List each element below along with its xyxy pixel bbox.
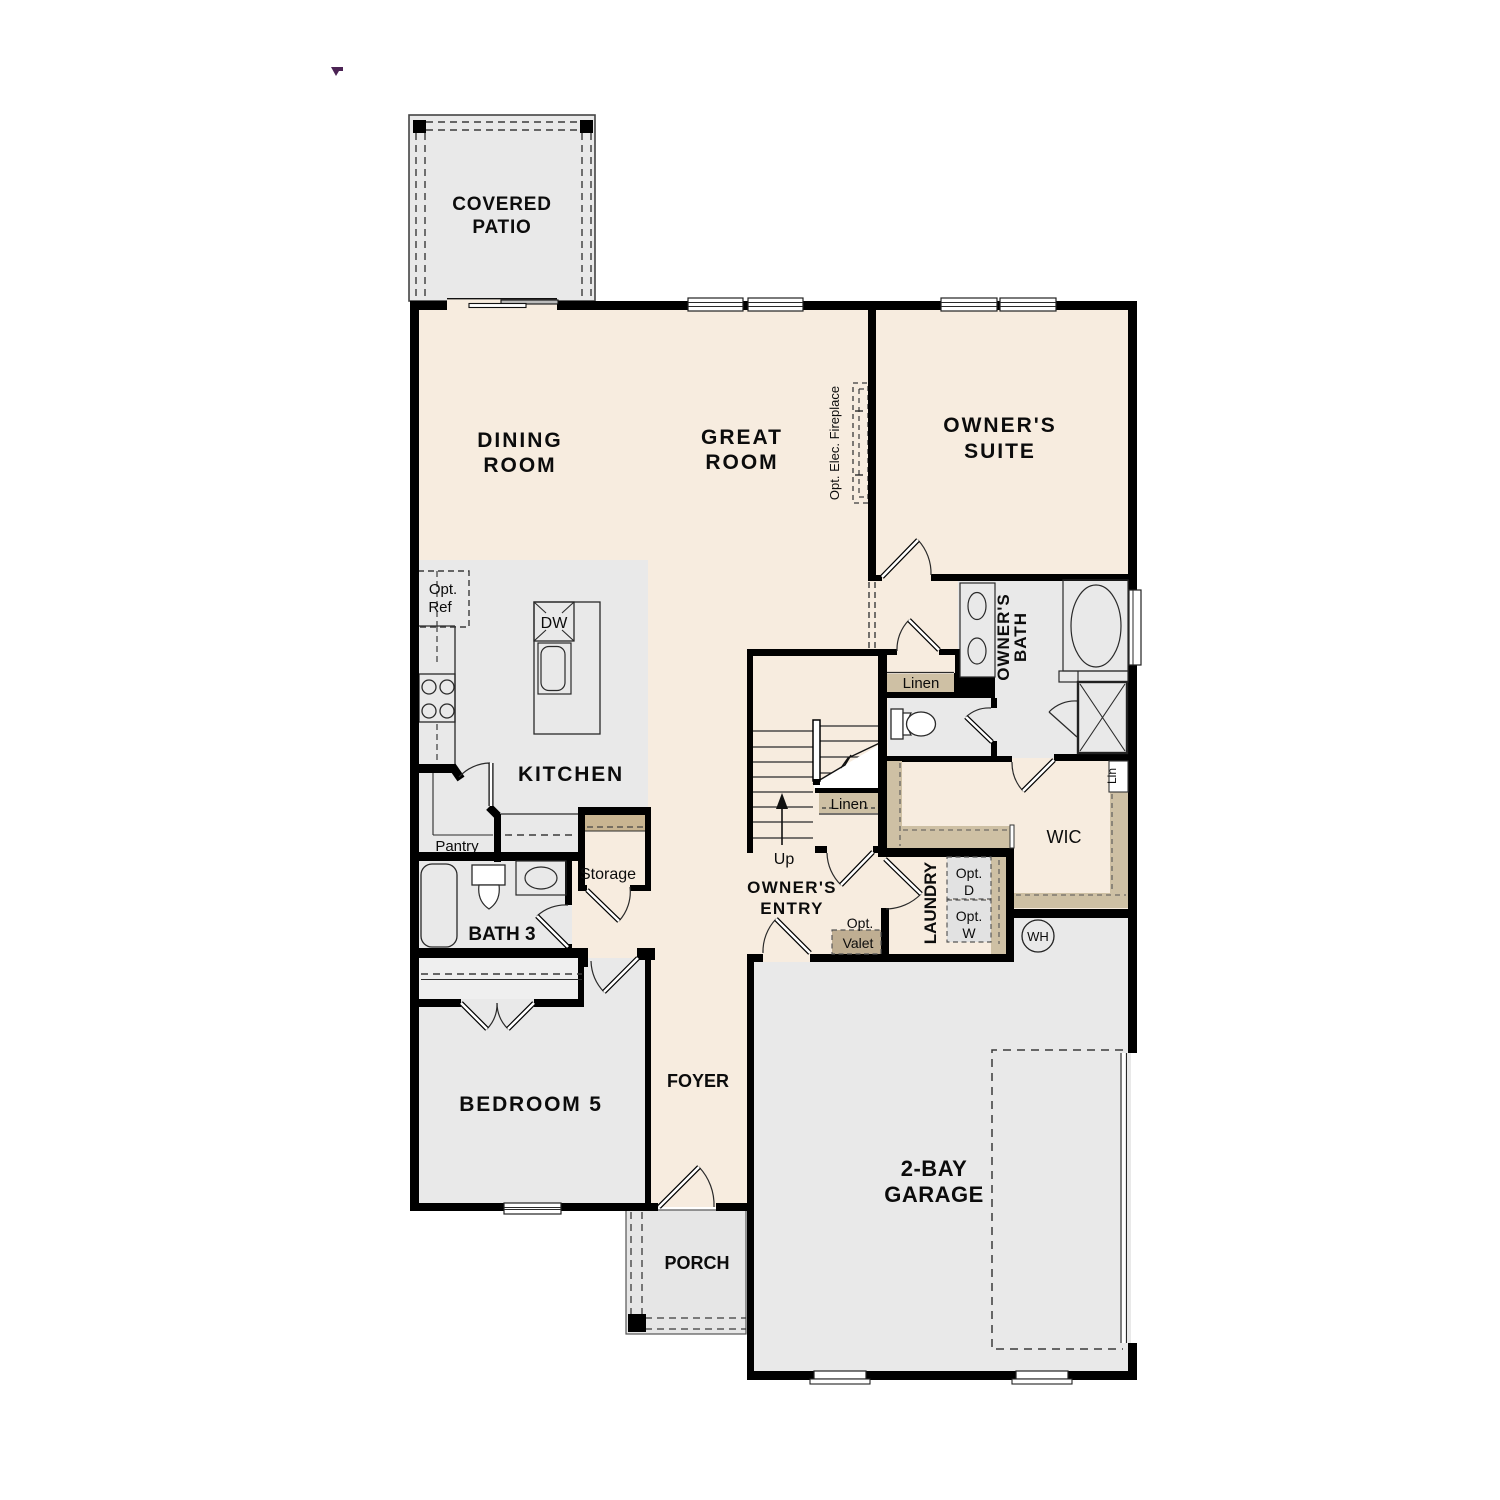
svg-text:BEDROOM 5: BEDROOM 5 [459,1093,602,1116]
svg-text:Opt. Elec. Fireplace: Opt. Elec. Fireplace [827,386,842,500]
svg-text:LAUNDRY: LAUNDRY [921,861,940,944]
svg-text:BATH 3: BATH 3 [468,924,535,945]
svg-text:Up: Up [774,851,795,868]
svg-text:BATH: BATH [1011,612,1030,662]
svg-text:Lin: Lin [1105,768,1119,784]
svg-text:Valet: Valet [843,935,874,951]
svg-text:Opt.: Opt. [956,865,982,881]
svg-text:Opt.: Opt. [956,908,982,924]
svg-text:DW: DW [541,615,569,632]
svg-text:WH: WH [1027,929,1049,944]
svg-text:Ref: Ref [428,599,452,616]
svg-text:DINING: DINING [477,429,563,452]
svg-text:Storage: Storage [580,866,636,883]
svg-text:PORCH: PORCH [664,1253,729,1273]
svg-text:D: D [964,882,974,898]
svg-text:KITCHEN: KITCHEN [518,763,624,786]
svg-text:ENTRY: ENTRY [760,899,824,918]
svg-text:PATIO: PATIO [472,217,531,238]
svg-text:FOYER: FOYER [667,1071,729,1091]
svg-text:OWNER'S: OWNER'S [943,414,1057,437]
svg-text:Opt.: Opt. [847,915,873,931]
svg-text:Linen: Linen [831,796,868,813]
svg-text:2-BAY: 2-BAY [901,1156,968,1181]
svg-text:W: W [962,925,976,941]
svg-text:OWNER'S: OWNER'S [747,878,837,897]
svg-text:Linen: Linen [903,675,940,692]
svg-text:WIC: WIC [1047,827,1082,847]
svg-text:GREAT: GREAT [701,426,783,449]
svg-text:SUITE: SUITE [964,440,1036,463]
svg-text:Opt.: Opt. [429,581,457,598]
svg-text:ROOM: ROOM [483,454,556,477]
svg-text:ROOM: ROOM [705,451,778,474]
svg-text:COVERED: COVERED [452,194,552,215]
svg-text:GARAGE: GARAGE [884,1182,984,1207]
